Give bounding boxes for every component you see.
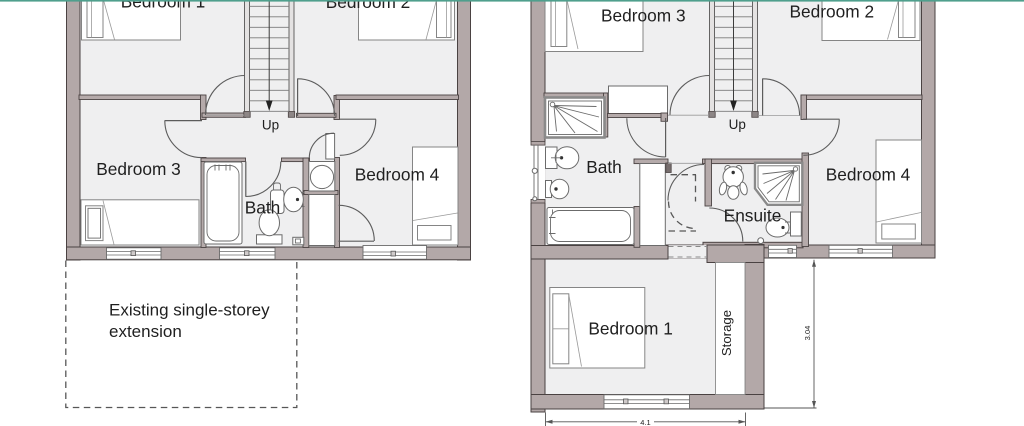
svg-text:Bedroom 3: Bedroom 3 bbox=[601, 6, 686, 26]
svg-text:Bedroom 4: Bedroom 4 bbox=[355, 165, 440, 185]
svg-text:Bedroom 3: Bedroom 3 bbox=[96, 159, 181, 179]
svg-text:Up: Up bbox=[262, 118, 279, 133]
svg-text:Bedroom 2: Bedroom 2 bbox=[326, 0, 411, 12]
svg-text:4.1: 4.1 bbox=[640, 418, 650, 426]
svg-text:Bedroom 4: Bedroom 4 bbox=[826, 165, 911, 185]
svg-text:Bedroom 1: Bedroom 1 bbox=[121, 0, 206, 12]
svg-text:Bath: Bath bbox=[245, 198, 281, 218]
svg-text:extension: extension bbox=[109, 322, 182, 341]
svg-text:Bedroom 2: Bedroom 2 bbox=[790, 1, 875, 21]
svg-text:Bedroom 1: Bedroom 1 bbox=[588, 318, 673, 338]
svg-text:Up: Up bbox=[729, 117, 746, 132]
svg-text:Storage: Storage bbox=[719, 310, 734, 356]
svg-text:Ensuite: Ensuite bbox=[724, 206, 782, 226]
svg-text:Existing single-storey: Existing single-storey bbox=[109, 301, 270, 320]
svg-text:3.04: 3.04 bbox=[803, 326, 812, 341]
svg-text:Bath: Bath bbox=[586, 157, 622, 177]
